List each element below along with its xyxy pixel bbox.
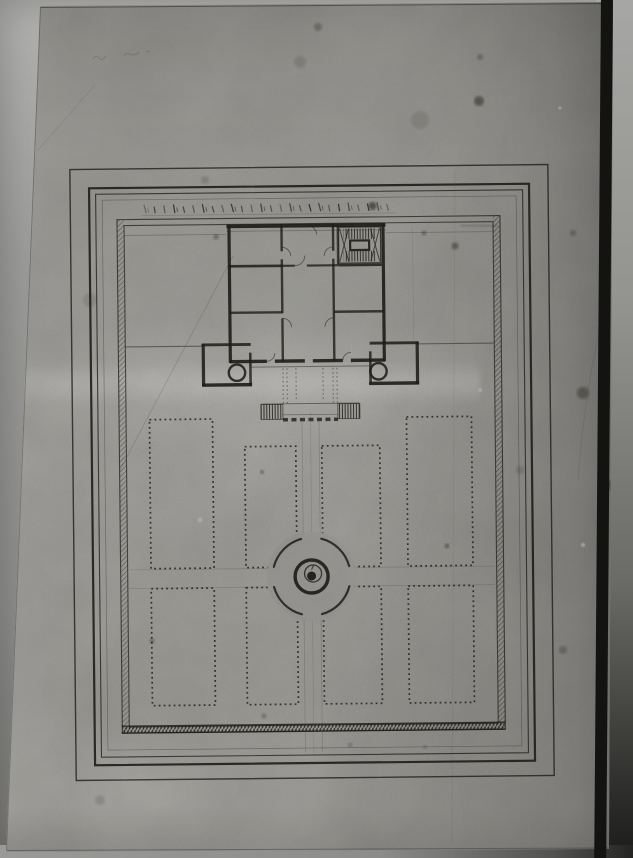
paper-sheet <box>0 0 633 858</box>
grain-mottle <box>0 0 633 858</box>
photograph <box>0 0 633 858</box>
paper-grain <box>0 0 633 858</box>
